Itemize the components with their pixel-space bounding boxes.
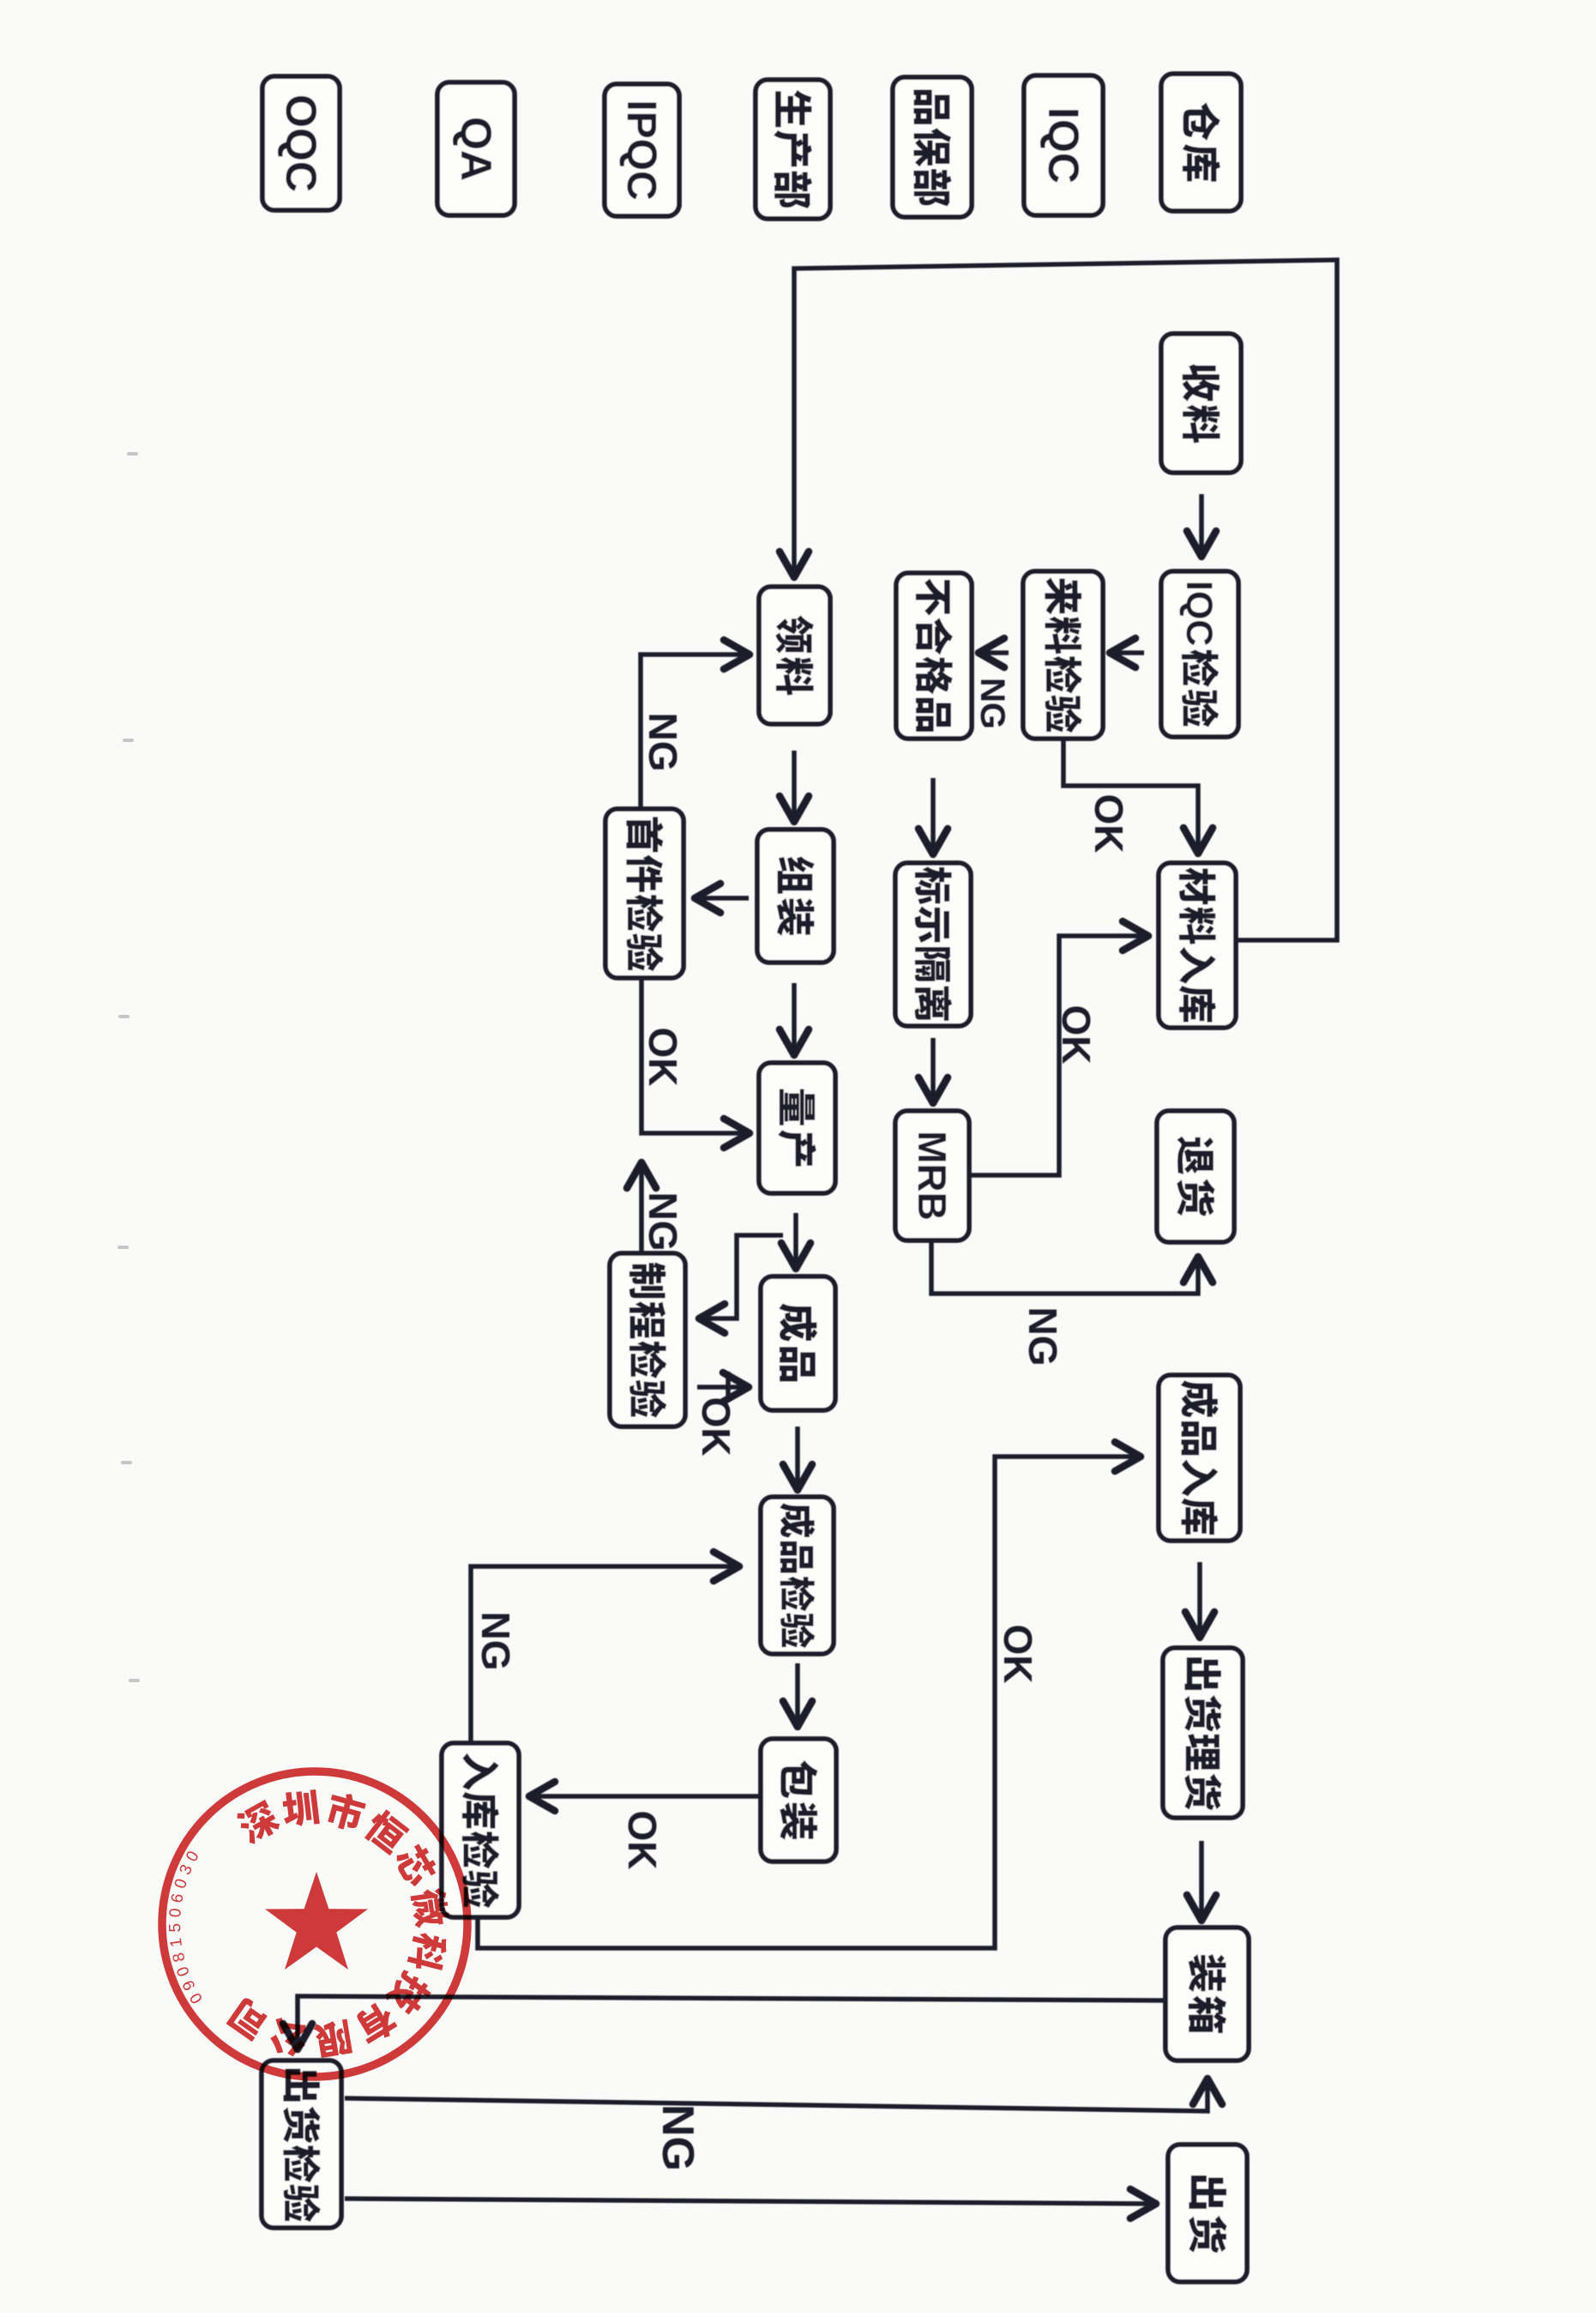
svg-text:NG: NG xyxy=(473,1612,518,1671)
svg-text:QA: QA xyxy=(452,117,500,181)
svg-text:NG: NG xyxy=(1021,1307,1065,1367)
svg-text:IPQC: IPQC xyxy=(618,100,664,200)
svg-text:IQC: IQC xyxy=(1039,107,1087,184)
svg-text:OK: OK xyxy=(694,1397,738,1457)
svg-text:NG: NG xyxy=(641,713,685,772)
svg-text:MRB: MRB xyxy=(910,1131,955,1221)
svg-text:5: 5 xyxy=(166,1923,184,1933)
svg-text:NG: NG xyxy=(653,2104,702,2171)
svg-text:OK: OK xyxy=(641,1028,685,1087)
svg-text:OK: OK xyxy=(1054,1005,1099,1065)
svg-text:NG: NG xyxy=(641,1192,685,1252)
svg-text:0: 0 xyxy=(166,1908,185,1918)
svg-text:IQC: IQC xyxy=(1178,581,1220,646)
svg-text:OK: OK xyxy=(1087,794,1131,854)
svg-text:OQC: OQC xyxy=(277,94,325,192)
svg-text:NG: NG xyxy=(973,678,1011,729)
svg-text:OK: OK xyxy=(620,1811,665,1870)
svg-text:OK: OK xyxy=(996,1625,1040,1684)
